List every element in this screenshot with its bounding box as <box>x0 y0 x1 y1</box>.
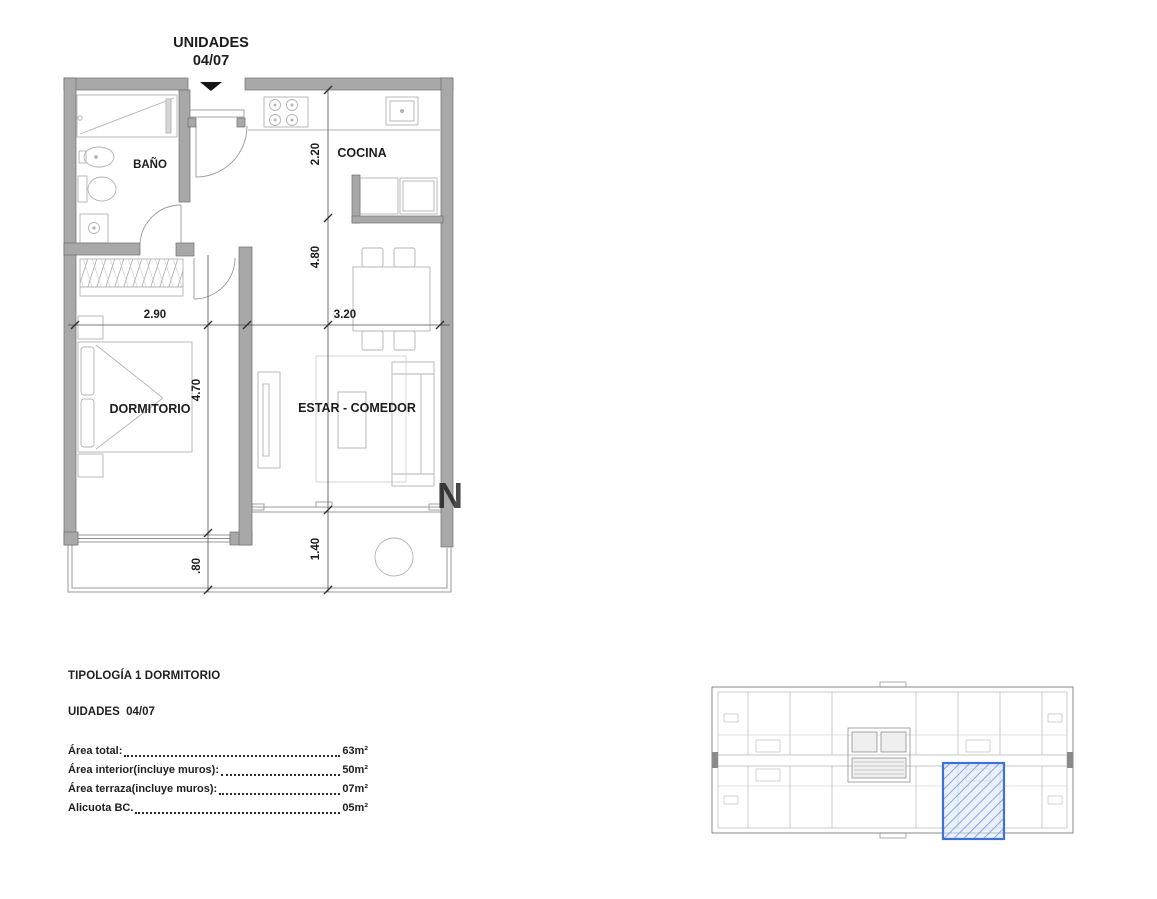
toilet <box>78 176 116 202</box>
unit-info: TIPOLOGÍA 1 DORMITORIO UIDADES 04/07 Áre… <box>68 670 368 818</box>
apartment-floorplan: UNIDADES 04/07 <box>55 25 465 605</box>
dim-bedroom-length: 4.70 <box>191 379 203 401</box>
units-line: UIDADES 04/07 <box>68 706 368 718</box>
dim-kitchen-depth: 2.20 <box>310 143 322 165</box>
rug <box>316 356 406 482</box>
bedroom-door <box>194 258 235 299</box>
page: UNIDADES 04/07 <box>0 0 1157 899</box>
sofa <box>392 362 434 486</box>
unit-highlight <box>943 763 1004 839</box>
area-value: 63m² <box>342 742 368 761</box>
stove <box>264 97 308 127</box>
area-label: Alicuota BC. <box>68 799 133 818</box>
dotted-leader <box>135 812 340 814</box>
terrace-outline <box>68 545 451 592</box>
area-value: 50m² <box>342 761 368 780</box>
dim-bedroom-width: 2.90 <box>144 309 166 321</box>
room-label-kitchen: COCINA <box>337 146 386 160</box>
room-label-living: ESTAR - COMEDOR <box>298 401 416 415</box>
dim-living-length: 4.80 <box>310 246 322 268</box>
area-row-terrace: Área terraza(incluye muros): 07m² <box>68 780 368 799</box>
area-label: Área total: <box>68 742 122 761</box>
dining-table <box>353 248 430 350</box>
unit-title-line2: 04/07 <box>193 53 229 69</box>
dim-terrace-right: 1.40 <box>310 538 322 560</box>
shower <box>70 95 177 137</box>
sliding-door <box>252 502 441 512</box>
dotted-leader <box>221 774 340 776</box>
bathroom-door <box>140 205 181 244</box>
tv-console <box>258 372 280 468</box>
watermark: N <box>437 475 463 516</box>
area-value: 05m² <box>342 799 368 818</box>
dotted-leader <box>124 755 340 757</box>
nightstand <box>78 316 103 339</box>
entry-door <box>196 126 247 177</box>
area-value: 07m² <box>342 780 368 799</box>
area-row-interior: Área interior(incluye muros): 50m² <box>68 761 368 780</box>
area-label: Área terraza(incluye muros): <box>68 780 217 799</box>
bedroom-window <box>78 535 230 542</box>
bed <box>78 342 192 452</box>
kitchen-sink <box>386 97 418 125</box>
entrance-arrow-icon <box>200 82 222 91</box>
area-table: Área total: 63m² Área interior(incluye m… <box>68 742 368 818</box>
fridge <box>400 178 437 214</box>
kitchen-cabinet <box>360 178 398 214</box>
area-row-alicuota: Alicuota BC. 05m² <box>68 799 368 818</box>
unit-title-line1: UNIDADES <box>173 35 249 51</box>
terrace-table <box>375 538 413 576</box>
dim-living-width: 3.20 <box>334 309 356 321</box>
area-label: Área interior(incluye muros): <box>68 761 219 780</box>
bathroom-sink <box>80 214 108 243</box>
typology-title: TIPOLOGÍA 1 DORMITORIO <box>68 670 368 682</box>
room-label-bedroom: DORMITORIO <box>109 402 190 416</box>
dimension-lines <box>68 86 450 594</box>
bidet <box>79 147 114 167</box>
area-row-total: Área total: 63m² <box>68 742 368 761</box>
dim-terrace-left: .80 <box>191 558 203 574</box>
wardrobe <box>80 259 183 296</box>
nightstand <box>78 454 103 477</box>
entry-threshold <box>189 110 244 117</box>
room-label-bathroom: BAÑO <box>133 158 167 171</box>
dotted-leader <box>219 793 340 795</box>
walls <box>64 78 453 547</box>
building-keyplan <box>703 675 1083 847</box>
